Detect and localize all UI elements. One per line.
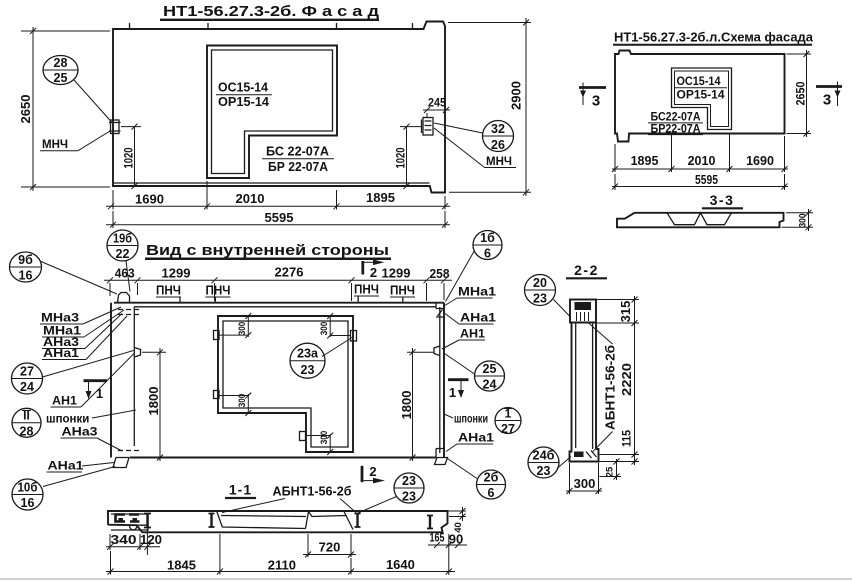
svg-text:19б: 19б xyxy=(113,232,132,246)
svg-text:1800: 1800 xyxy=(399,391,414,420)
svg-text:463: 463 xyxy=(115,266,135,281)
svg-text:1895: 1895 xyxy=(631,154,659,168)
svg-text:90: 90 xyxy=(449,532,463,547)
svg-text:26: 26 xyxy=(491,138,505,152)
svg-text:1: 1 xyxy=(449,385,456,400)
svg-text:шпонки: шпонки xyxy=(454,414,488,426)
svg-text:245: 245 xyxy=(428,96,446,110)
svg-text:2: 2 xyxy=(370,265,377,280)
svg-text:Вид с внутренней стороны: Вид с внутренней стороны xyxy=(146,243,389,259)
svg-text:2б: 2б xyxy=(484,471,499,485)
svg-text:1299: 1299 xyxy=(382,266,411,281)
svg-text:1-1: 1-1 xyxy=(229,482,252,498)
svg-text:300: 300 xyxy=(574,476,596,491)
svg-text:27: 27 xyxy=(20,365,34,379)
svg-text:БР 22-07А: БР 22-07А xyxy=(268,160,328,174)
svg-text:23: 23 xyxy=(402,474,416,488)
svg-text:315: 315 xyxy=(618,301,633,323)
svg-text:25: 25 xyxy=(483,362,497,376)
svg-text:27: 27 xyxy=(501,422,515,436)
svg-text:1800: 1800 xyxy=(146,387,161,416)
svg-text:25: 25 xyxy=(605,466,616,477)
svg-text:23: 23 xyxy=(537,464,551,478)
svg-text:МНа1: МНа1 xyxy=(458,285,496,299)
svg-text:БР22-07А: БР22-07А xyxy=(651,122,701,136)
svg-text:165: 165 xyxy=(430,531,445,545)
svg-text:10б: 10б xyxy=(18,481,38,495)
svg-text:24: 24 xyxy=(20,380,34,394)
svg-text:1845: 1845 xyxy=(167,558,196,573)
svg-text:3: 3 xyxy=(592,93,600,110)
svg-text:5595: 5595 xyxy=(695,173,718,187)
svg-text:2276: 2276 xyxy=(275,265,304,280)
svg-text:3-3: 3-3 xyxy=(710,192,735,208)
svg-text:2010: 2010 xyxy=(688,154,716,168)
svg-text:1: 1 xyxy=(96,386,103,401)
svg-text:300: 300 xyxy=(237,322,248,336)
svg-text:1020: 1020 xyxy=(394,147,408,168)
svg-text:23: 23 xyxy=(402,490,416,504)
svg-text:2010: 2010 xyxy=(236,191,265,206)
svg-text:300: 300 xyxy=(319,322,330,336)
svg-text:ОС15-14: ОС15-14 xyxy=(677,74,721,88)
svg-text:ПНЧ: ПНЧ xyxy=(156,284,181,298)
svg-text:АБНТ1-56-2б: АБНТ1-56-2б xyxy=(273,485,352,499)
svg-text:22: 22 xyxy=(116,247,130,261)
svg-text:АН1: АН1 xyxy=(52,394,77,408)
svg-text:115: 115 xyxy=(620,430,634,447)
svg-text:16: 16 xyxy=(21,496,35,510)
svg-text:ОР15-14: ОР15-14 xyxy=(218,95,269,109)
svg-text:ОС15-14: ОС15-14 xyxy=(218,81,268,95)
svg-text:1690: 1690 xyxy=(135,192,164,207)
svg-text:МНа3: МНа3 xyxy=(41,311,79,325)
svg-text:24: 24 xyxy=(483,378,497,392)
svg-text:2: 2 xyxy=(369,464,376,479)
svg-text:23а: 23а xyxy=(297,347,319,361)
svg-text:23: 23 xyxy=(533,292,547,306)
svg-text:НТ1-56.27.3-2б.л.Схема фасада: НТ1-56.27.3-2б.л.Схема фасада xyxy=(614,30,814,45)
svg-text:6: 6 xyxy=(488,486,495,500)
svg-text:25: 25 xyxy=(54,71,68,85)
svg-text:16: 16 xyxy=(19,269,33,283)
svg-text:МНЧ: МНЧ xyxy=(42,137,68,151)
svg-text:5595: 5595 xyxy=(265,210,294,225)
svg-text:АНа3: АНа3 xyxy=(62,425,98,439)
svg-text:720: 720 xyxy=(319,540,341,555)
svg-text:9б: 9б xyxy=(18,253,33,267)
svg-text:2900: 2900 xyxy=(509,81,524,110)
svg-text:ПНЧ: ПНЧ xyxy=(206,284,231,298)
svg-text:120: 120 xyxy=(140,532,162,547)
svg-text:24б: 24б xyxy=(533,449,555,463)
svg-text:ПНЧ: ПНЧ xyxy=(354,283,379,297)
svg-text:2650: 2650 xyxy=(794,81,808,105)
svg-text:300: 300 xyxy=(798,214,809,228)
svg-text:23: 23 xyxy=(301,363,315,377)
svg-text:АНа1: АНа1 xyxy=(460,311,496,325)
svg-text:32: 32 xyxy=(491,122,505,136)
svg-text:НТ1-56.27.3-2б. Ф а с а д: НТ1-56.27.3-2б. Ф а с а д xyxy=(163,4,379,20)
svg-text:340: 340 xyxy=(111,532,137,547)
svg-text:АН1: АН1 xyxy=(460,327,485,341)
svg-text:300: 300 xyxy=(237,394,248,408)
svg-text:ОР15-14: ОР15-14 xyxy=(677,88,725,102)
svg-text:АНа1: АНа1 xyxy=(458,431,494,445)
svg-text:20: 20 xyxy=(533,276,547,290)
svg-text:АНа1: АНа1 xyxy=(48,459,84,473)
svg-text:1299: 1299 xyxy=(162,266,191,281)
svg-text:2220: 2220 xyxy=(619,363,634,396)
svg-text:28: 28 xyxy=(54,56,68,70)
svg-text:АНа1: АНа1 xyxy=(43,346,79,360)
svg-text:28: 28 xyxy=(20,424,34,438)
svg-text:6: 6 xyxy=(484,247,491,261)
svg-text:2-2: 2-2 xyxy=(574,262,599,278)
svg-text:300: 300 xyxy=(319,431,330,445)
svg-text:1895: 1895 xyxy=(366,190,395,205)
svg-text:1690: 1690 xyxy=(746,154,774,168)
svg-text:МНЧ: МНЧ xyxy=(486,154,512,168)
svg-text:3: 3 xyxy=(823,92,831,109)
svg-text:1б: 1б xyxy=(480,231,495,245)
svg-text:258: 258 xyxy=(430,266,450,281)
svg-text:1020: 1020 xyxy=(122,147,136,168)
svg-text:ПНЧ: ПНЧ xyxy=(390,284,415,298)
svg-text:БС 22-07А: БС 22-07А xyxy=(266,145,329,159)
svg-text:2650: 2650 xyxy=(18,95,33,124)
svg-text:2110: 2110 xyxy=(268,558,296,573)
svg-text:1640: 1640 xyxy=(386,557,415,572)
svg-text:АБНТ1-56-2б: АБНТ1-56-2б xyxy=(604,345,618,430)
